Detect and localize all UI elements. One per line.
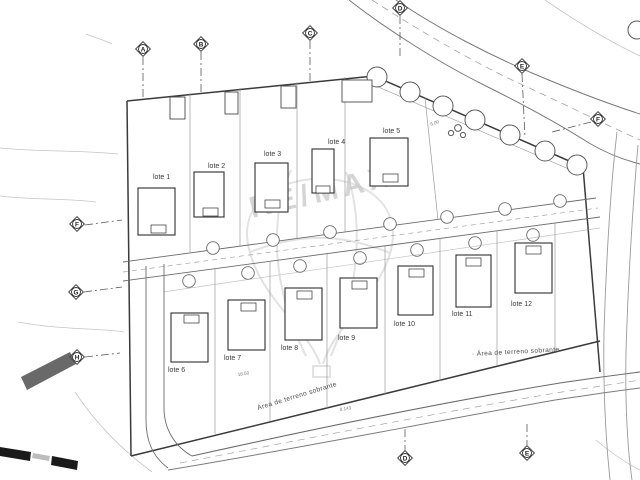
dimension-label-3: 18.50 xyxy=(237,370,250,377)
scale-bar-segment xyxy=(32,453,50,461)
house-lot-8 xyxy=(285,288,322,340)
house-lot-7 xyxy=(228,300,265,350)
section-marker-g: G xyxy=(69,285,84,300)
dimension-label-1: 5.00 xyxy=(430,119,441,127)
scale-bar-segments xyxy=(0,447,78,470)
section-marker-c: C xyxy=(303,26,318,41)
lot-label-1: lote 1 xyxy=(153,174,170,181)
right-road xyxy=(604,132,638,480)
section-marker-d-bottom: D xyxy=(398,451,413,466)
house-lot-1 xyxy=(138,188,175,235)
svg-text:F: F xyxy=(75,221,79,228)
surplus-area-label-1: Área de terreno sobrante xyxy=(256,379,338,412)
lot-label-10: lote 10 xyxy=(394,321,415,328)
house-lot-3 xyxy=(255,163,288,212)
svg-text:E: E xyxy=(520,63,525,70)
lot-label-8: lote 8 xyxy=(281,345,298,352)
lot-label-7: lote 7 xyxy=(224,355,241,362)
scanned-site-plan-page: RE/MAX xyxy=(0,0,640,480)
left-street xyxy=(146,264,192,468)
lot-label-5: lote 5 xyxy=(383,128,400,135)
house-lot-9 xyxy=(340,278,377,328)
svg-text:D: D xyxy=(403,455,408,462)
svg-text:A: A xyxy=(141,46,146,53)
lot-label-3: lote 3 xyxy=(264,151,281,158)
lot-label-9: lote 9 xyxy=(338,335,355,342)
section-marker-f-left: F xyxy=(70,217,85,232)
svg-text:G: G xyxy=(74,289,79,296)
house-lot-4 xyxy=(312,149,334,193)
scale-bar-segment xyxy=(51,456,78,470)
lot-label-6: lote 6 xyxy=(168,367,185,374)
svg-text:B: B xyxy=(199,41,204,48)
section-marker-a: A xyxy=(136,42,151,57)
house-lot-10 xyxy=(398,266,433,315)
lot-label-12: lote 12 xyxy=(511,301,532,308)
svg-text:E: E xyxy=(525,450,530,457)
house-lot-6 xyxy=(171,313,208,362)
svg-text:C: C xyxy=(308,30,313,37)
lot-label-4: lote 4 xyxy=(328,139,345,146)
section-marker-b: B xyxy=(194,37,209,52)
house-lot-2 xyxy=(194,172,224,217)
site-plan-drawing: RE/MAX xyxy=(0,0,640,480)
section-marker-d-top: D xyxy=(393,1,408,16)
section-marker-f-right: F xyxy=(591,112,606,127)
hatched-wall xyxy=(21,352,76,390)
svg-text:D: D xyxy=(398,5,403,12)
svg-text:H: H xyxy=(75,354,80,361)
scale-bar-segment xyxy=(0,447,31,461)
lot-label-11: lote 11 xyxy=(452,311,473,318)
surplus-area-label-2: · Área de terreno sobrante xyxy=(472,344,560,358)
lot-label-2: lote 2 xyxy=(208,163,225,170)
dimension-label-2: 8.143 xyxy=(339,405,352,412)
house-lot-5 xyxy=(370,138,408,186)
house-lot-11 xyxy=(456,255,491,307)
house-lot-12 xyxy=(515,243,552,293)
svg-text:F: F xyxy=(596,116,600,123)
section-marker-e-bottom: E xyxy=(520,446,535,461)
